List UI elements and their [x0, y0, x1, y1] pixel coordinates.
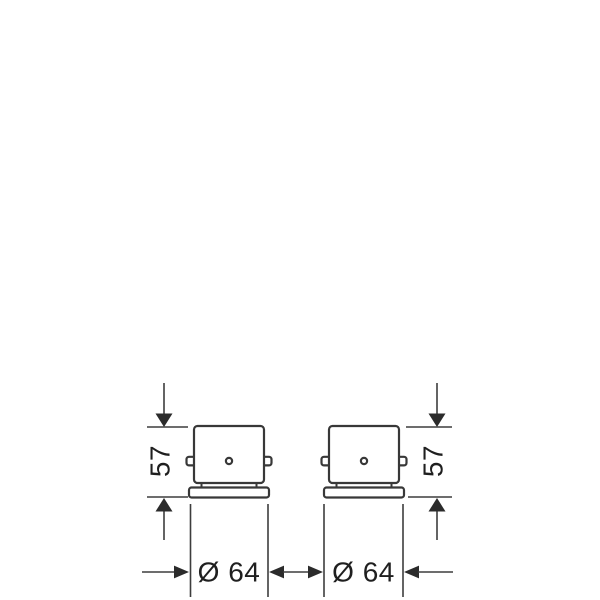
- right-height-dimension: 57: [406, 383, 452, 540]
- left-height-bottom-arrowhead-icon: [156, 498, 173, 512]
- left-valve-screw-hole-icon: [226, 458, 232, 464]
- right-height-label: 57: [418, 445, 449, 477]
- left-diameter-label: Ø 64: [198, 557, 261, 588]
- left-valve-body: [194, 426, 264, 483]
- left-valve-base-plate: [189, 488, 269, 498]
- right-valve-body: [329, 426, 399, 483]
- center-left-arrowhead-icon: [269, 566, 284, 579]
- right-valve-fixture: [322, 426, 407, 498]
- technical-drawing-page: 57 57 Ø 64: [0, 0, 600, 600]
- right-height-bottom-arrowhead-icon: [429, 498, 446, 512]
- left-height-dimension: 57: [145, 383, 189, 540]
- left-valve-fixture: [187, 426, 272, 498]
- right-diameter-label: Ø 64: [332, 557, 395, 588]
- right-valve-base-plate: [324, 488, 404, 498]
- right-height-top-arrowhead-icon: [429, 414, 446, 428]
- center-right-arrowhead-icon: [308, 566, 323, 579]
- valve-dimension-drawing: 57 57 Ø 64: [0, 0, 600, 600]
- left-diameter-dimension: Ø 64: [142, 557, 260, 588]
- right-valve-screw-hole-icon: [361, 458, 367, 464]
- center-spacing-dimension: [269, 566, 323, 579]
- right-diameter-dimension: Ø 64: [332, 557, 453, 588]
- left-diameter-arrowhead-icon: [174, 566, 189, 579]
- left-height-label: 57: [145, 445, 176, 477]
- left-height-top-arrowhead-icon: [156, 414, 173, 428]
- right-diameter-arrowhead-icon: [404, 566, 419, 579]
